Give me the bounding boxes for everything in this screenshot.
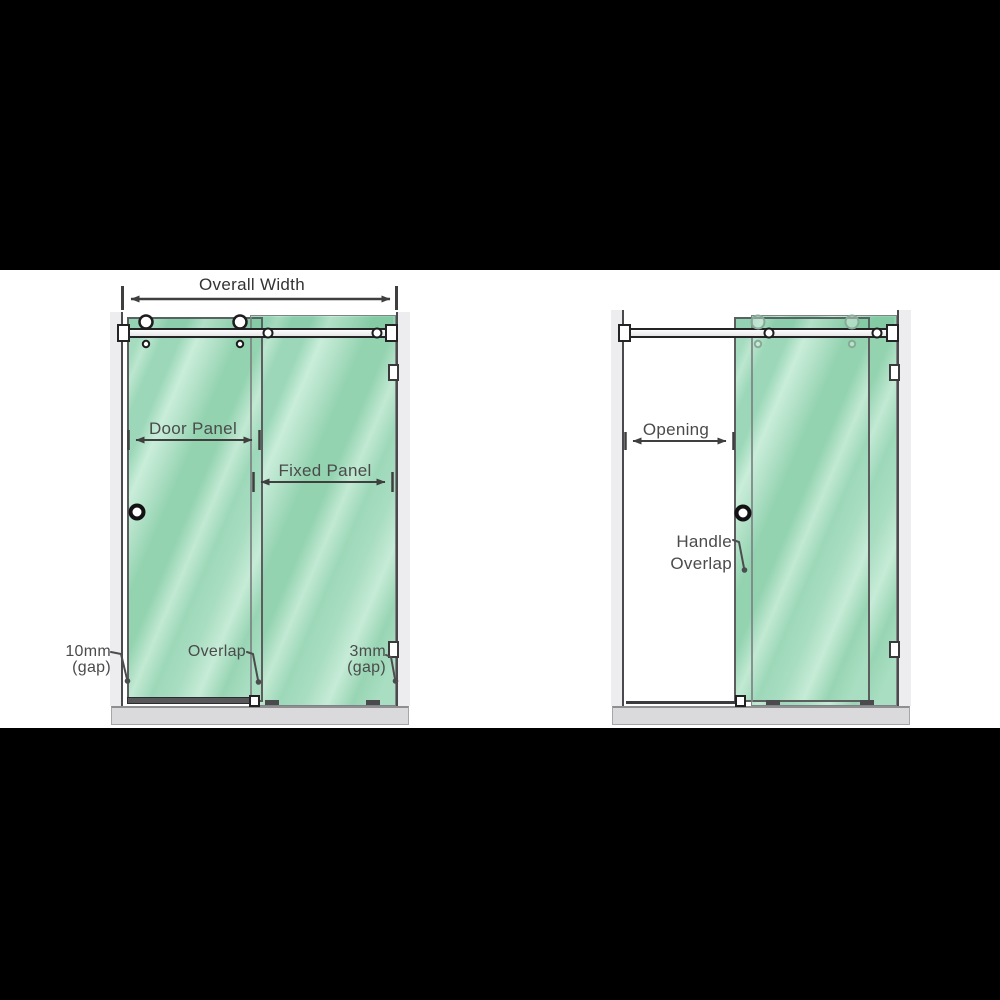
- sliding-door-panel-open: [734, 317, 870, 702]
- sliding-track-rail: [120, 328, 397, 338]
- fixed-panel-label: Fixed Panel: [263, 461, 387, 481]
- shower-tray-open: [612, 706, 910, 725]
- fixed-panel-edge-through-glass-open: [751, 317, 753, 702]
- overlap-label: Overlap: [170, 644, 246, 660]
- right-gap-unit: (gap): [334, 660, 386, 676]
- letterbox-top: [0, 0, 1000, 270]
- wall-clip-lower-open: [889, 641, 900, 658]
- left-gap-value: 10mm: [58, 644, 111, 660]
- fixed-panel-floor-clamp-open: [766, 700, 780, 705]
- rail-end-bracket-right: [385, 324, 398, 342]
- handle-overlap-label: Handle Overlap: [650, 531, 732, 575]
- wall-clip-upper: [388, 364, 399, 381]
- fixed-panel-edge-through-glass: [250, 317, 252, 702]
- overall-width-label: Overall Width: [162, 275, 342, 295]
- handle-overlap-line1: Handle: [650, 531, 732, 553]
- wall-clip-lower: [388, 641, 399, 658]
- rail-end-bracket-left: [117, 324, 130, 342]
- fixed-panel-floor-clamp-open: [860, 700, 874, 705]
- floor-guide-block-open: [735, 695, 746, 707]
- rail-end-bracket-left-open: [618, 324, 631, 342]
- left-wall-channel: [110, 312, 123, 706]
- bottom-threshold-line: [626, 701, 736, 704]
- fixed-panel-floor-clamp: [265, 700, 279, 705]
- opening-label: Opening: [617, 420, 735, 440]
- shower-tray: [111, 706, 409, 725]
- left-gap-unit: (gap): [58, 660, 111, 676]
- wall-clip-upper-open: [889, 364, 900, 381]
- shower-screen-dimension-diagram: Overall Width Door Panel Fixed Panel 10m…: [0, 0, 1000, 1000]
- floor-guide-block: [249, 695, 260, 707]
- sliding-track-rail-open: [621, 328, 898, 338]
- right-gap-label: 3mm (gap): [334, 644, 386, 676]
- letterbox-bottom: [0, 728, 1000, 1000]
- left-gap-label: 10mm (gap): [58, 644, 111, 676]
- right-gap-value: 3mm: [334, 644, 386, 660]
- door-bottom-seal: [127, 697, 257, 704]
- door-panel-label: Door Panel: [133, 419, 253, 439]
- rail-end-bracket-right-open: [886, 324, 899, 342]
- fixed-panel-floor-clamp: [366, 700, 380, 705]
- handle-overlap-line2: Overlap: [650, 553, 732, 575]
- left-wall-channel-open: [611, 310, 624, 706]
